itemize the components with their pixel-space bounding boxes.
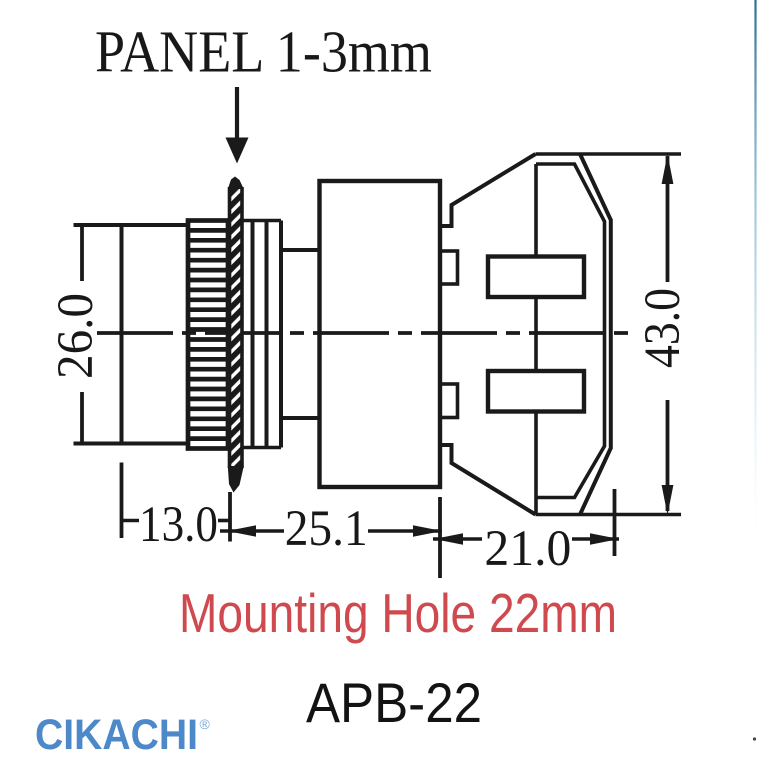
svg-text:26.0: 26.0 <box>48 293 104 379</box>
svg-text:25.1: 25.1 <box>285 501 368 557</box>
svg-text:21.0: 21.0 <box>484 521 571 577</box>
svg-text:13.0: 13.0 <box>139 497 218 553</box>
svg-text:APB-22: APB-22 <box>306 671 482 734</box>
svg-text:Mounting Hole 22mm: Mounting Hole 22mm <box>179 582 617 644</box>
svg-text:43.0: 43.0 <box>635 288 691 368</box>
svg-text:®: ® <box>200 716 211 732</box>
svg-text:CIKACHI: CIKACHI <box>35 712 198 759</box>
svg-text:PANEL 1-3mm: PANEL 1-3mm <box>95 19 432 85</box>
